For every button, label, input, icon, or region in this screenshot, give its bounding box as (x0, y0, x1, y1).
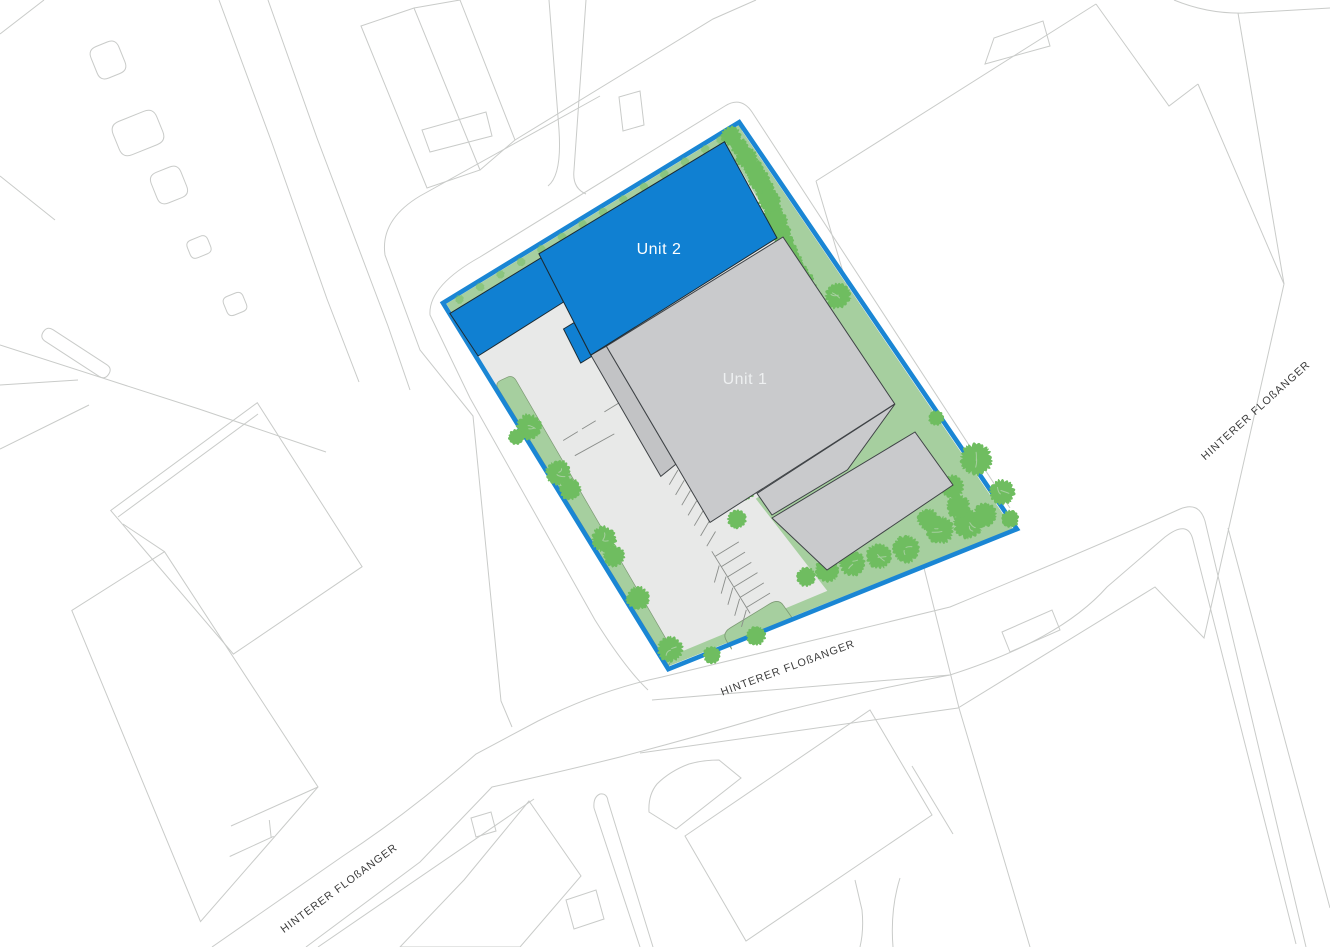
svg-text:Unit 1: Unit 1 (723, 371, 768, 388)
svg-text:Unit 2: Unit 2 (637, 241, 682, 258)
